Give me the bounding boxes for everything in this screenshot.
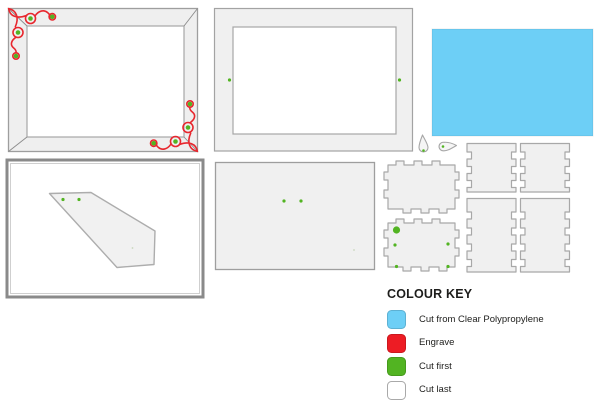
cut-first-dot	[282, 199, 285, 202]
legend-swatch-cut-first	[387, 357, 406, 376]
cut-first-dot	[61, 198, 64, 201]
colour-key-title: COLOUR KEY	[387, 287, 587, 301]
blank-panel-outline	[216, 163, 375, 270]
cut-first-dot	[442, 145, 445, 148]
legend-row: Cut from Clear Polypropylene	[387, 310, 587, 329]
legend-row: Cut first	[387, 357, 587, 376]
notched-panels	[467, 144, 570, 273]
backing-board-piece	[7, 160, 203, 297]
cut-first-dot	[77, 198, 80, 201]
blank-panel-piece	[216, 163, 375, 270]
teardrop-piece-vertical	[419, 135, 428, 152]
cut-first-dot	[398, 78, 401, 81]
faint-registration-dot	[132, 247, 134, 249]
notched-panel-top-left	[467, 144, 516, 193]
page: COLOUR KEY Cut from Clear Polypropylene …	[0, 0, 600, 407]
cut-first-dot	[395, 265, 398, 268]
teardrop-outline	[439, 142, 456, 151]
teardrop-piece-horizontal	[439, 142, 456, 151]
frame-opening-outline	[233, 27, 396, 134]
finger-joint-side-1	[384, 161, 459, 213]
cut-first-dot	[393, 243, 396, 246]
finger-joint-pieces	[384, 161, 459, 271]
legend-row: Engrave	[387, 334, 587, 353]
legend-label: Cut last	[419, 385, 451, 395]
engraved-frame-piece	[9, 9, 198, 152]
cut-first-dot	[422, 149, 425, 152]
cut-first-dot	[446, 242, 449, 245]
faint-registration-dot	[353, 249, 355, 251]
cut-first-dots-teardrop-v	[422, 149, 425, 152]
notched-panel-bottom-left	[467, 199, 516, 273]
legend-swatch-engrave	[387, 334, 406, 353]
legend-row: Cut last	[387, 381, 587, 400]
legend-swatch-cut-last	[387, 381, 406, 400]
legend-label: Engrave	[419, 338, 454, 348]
legend-label: Cut from Clear Polypropylene	[419, 315, 544, 325]
clear-polypropylene-sheet	[432, 29, 593, 136]
legend-label: Cut first	[419, 362, 452, 372]
cut-first-dots-teardrop-h	[442, 145, 445, 148]
colour-key: COLOUR KEY Cut from Clear Polypropylene …	[387, 287, 587, 404]
plain-frame-piece	[215, 9, 413, 152]
cut-first-dot	[228, 78, 231, 81]
notched-panel-top-right	[521, 144, 570, 193]
cut-first-dot	[299, 199, 302, 202]
cut-first-dot-large	[393, 226, 400, 233]
frame-opening-outline	[27, 26, 184, 137]
cut-first-dot	[446, 265, 449, 268]
legend-swatch-cut-polypropylene	[387, 310, 406, 329]
notched-panel-bottom-right	[521, 199, 570, 273]
